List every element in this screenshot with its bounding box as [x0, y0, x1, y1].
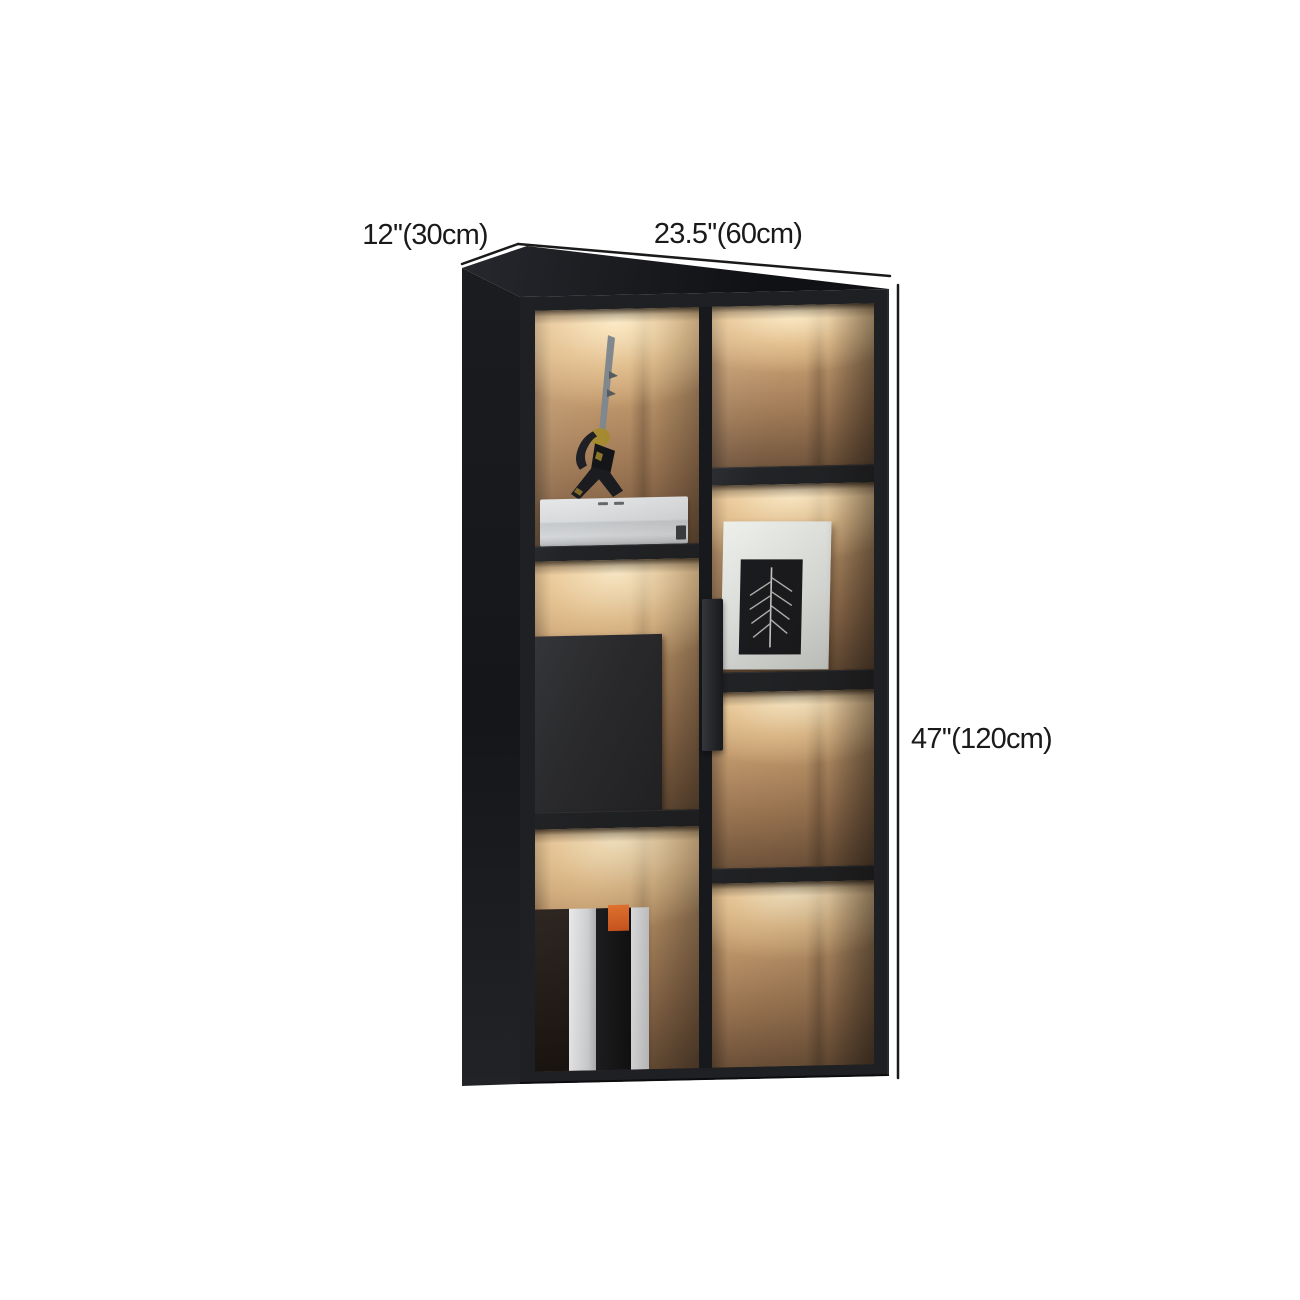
book-black: [596, 908, 631, 1071]
book-orange-accent: [608, 905, 629, 931]
cabinet-left-side-panel: [462, 268, 520, 1086]
depth-dimension-label: 12''(30cm): [330, 218, 520, 252]
height-dimension-label: 47''(120cm): [911, 722, 1052, 756]
width-dimension-label: 23.5''(60cm): [633, 217, 823, 251]
leaf-artwork: [739, 559, 803, 654]
product-dimension-image: 12''(30cm) 23.5''(60cm) 47''(120cm): [0, 0, 1300, 1300]
box-vent: [614, 502, 624, 505]
closed-cabinet-section: [535, 634, 662, 813]
white-storage-box: [540, 496, 688, 546]
display-compartment: [712, 880, 874, 1068]
door-handle: [702, 599, 723, 751]
book-white: [631, 907, 649, 1069]
box-bracket: [676, 525, 686, 539]
book-row: [535, 907, 669, 1072]
box-vent: [598, 502, 608, 505]
right-glass-door: [712, 303, 874, 1068]
left-glass-door: [535, 307, 699, 1072]
book-white: [569, 908, 596, 1071]
book-dark: [535, 909, 569, 1072]
display-compartment: [712, 303, 874, 468]
samurai-figurine: [553, 332, 653, 500]
cabinet-front: [520, 289, 889, 1084]
framed-artwork: [720, 521, 831, 669]
display-compartment: [712, 689, 874, 869]
